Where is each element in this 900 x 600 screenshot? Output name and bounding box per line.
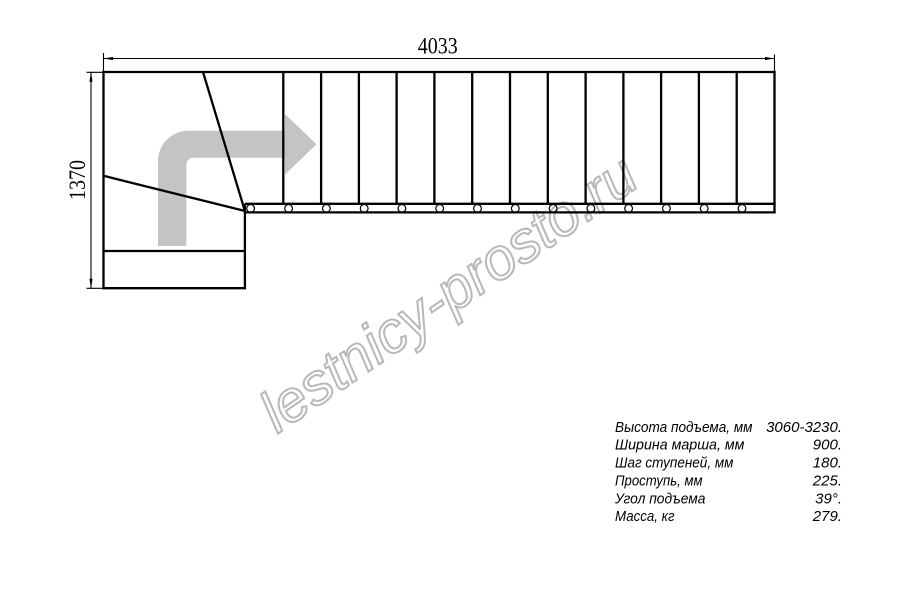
svg-text:3060-3230.: 3060-3230. bbox=[766, 419, 842, 436]
svg-text:180.: 180. bbox=[813, 455, 842, 472]
svg-text:lestnicy-prosto.ru: lestnicy-prosto.ru bbox=[248, 142, 649, 445]
svg-text:Высота подъема, мм: Высота подъема, мм bbox=[615, 419, 753, 436]
svg-text:Проступь, мм: Проступь, мм bbox=[615, 472, 703, 489]
svg-text:279.: 279. bbox=[812, 508, 842, 525]
svg-text:39°.: 39°. bbox=[815, 490, 842, 507]
svg-text:225.: 225. bbox=[812, 472, 842, 489]
svg-text:Шаг ступеней, мм: Шаг ступеней, мм bbox=[615, 455, 733, 472]
svg-text:900.: 900. bbox=[813, 437, 842, 454]
svg-text:4033: 4033 bbox=[418, 33, 458, 59]
svg-text:Масса, кг: Масса, кг bbox=[615, 508, 675, 525]
svg-text:Ширина марша, мм: Ширина марша, мм bbox=[615, 437, 744, 454]
svg-text:Угол подъема: Угол подъема bbox=[614, 490, 705, 507]
svg-text:1370: 1370 bbox=[65, 160, 91, 200]
